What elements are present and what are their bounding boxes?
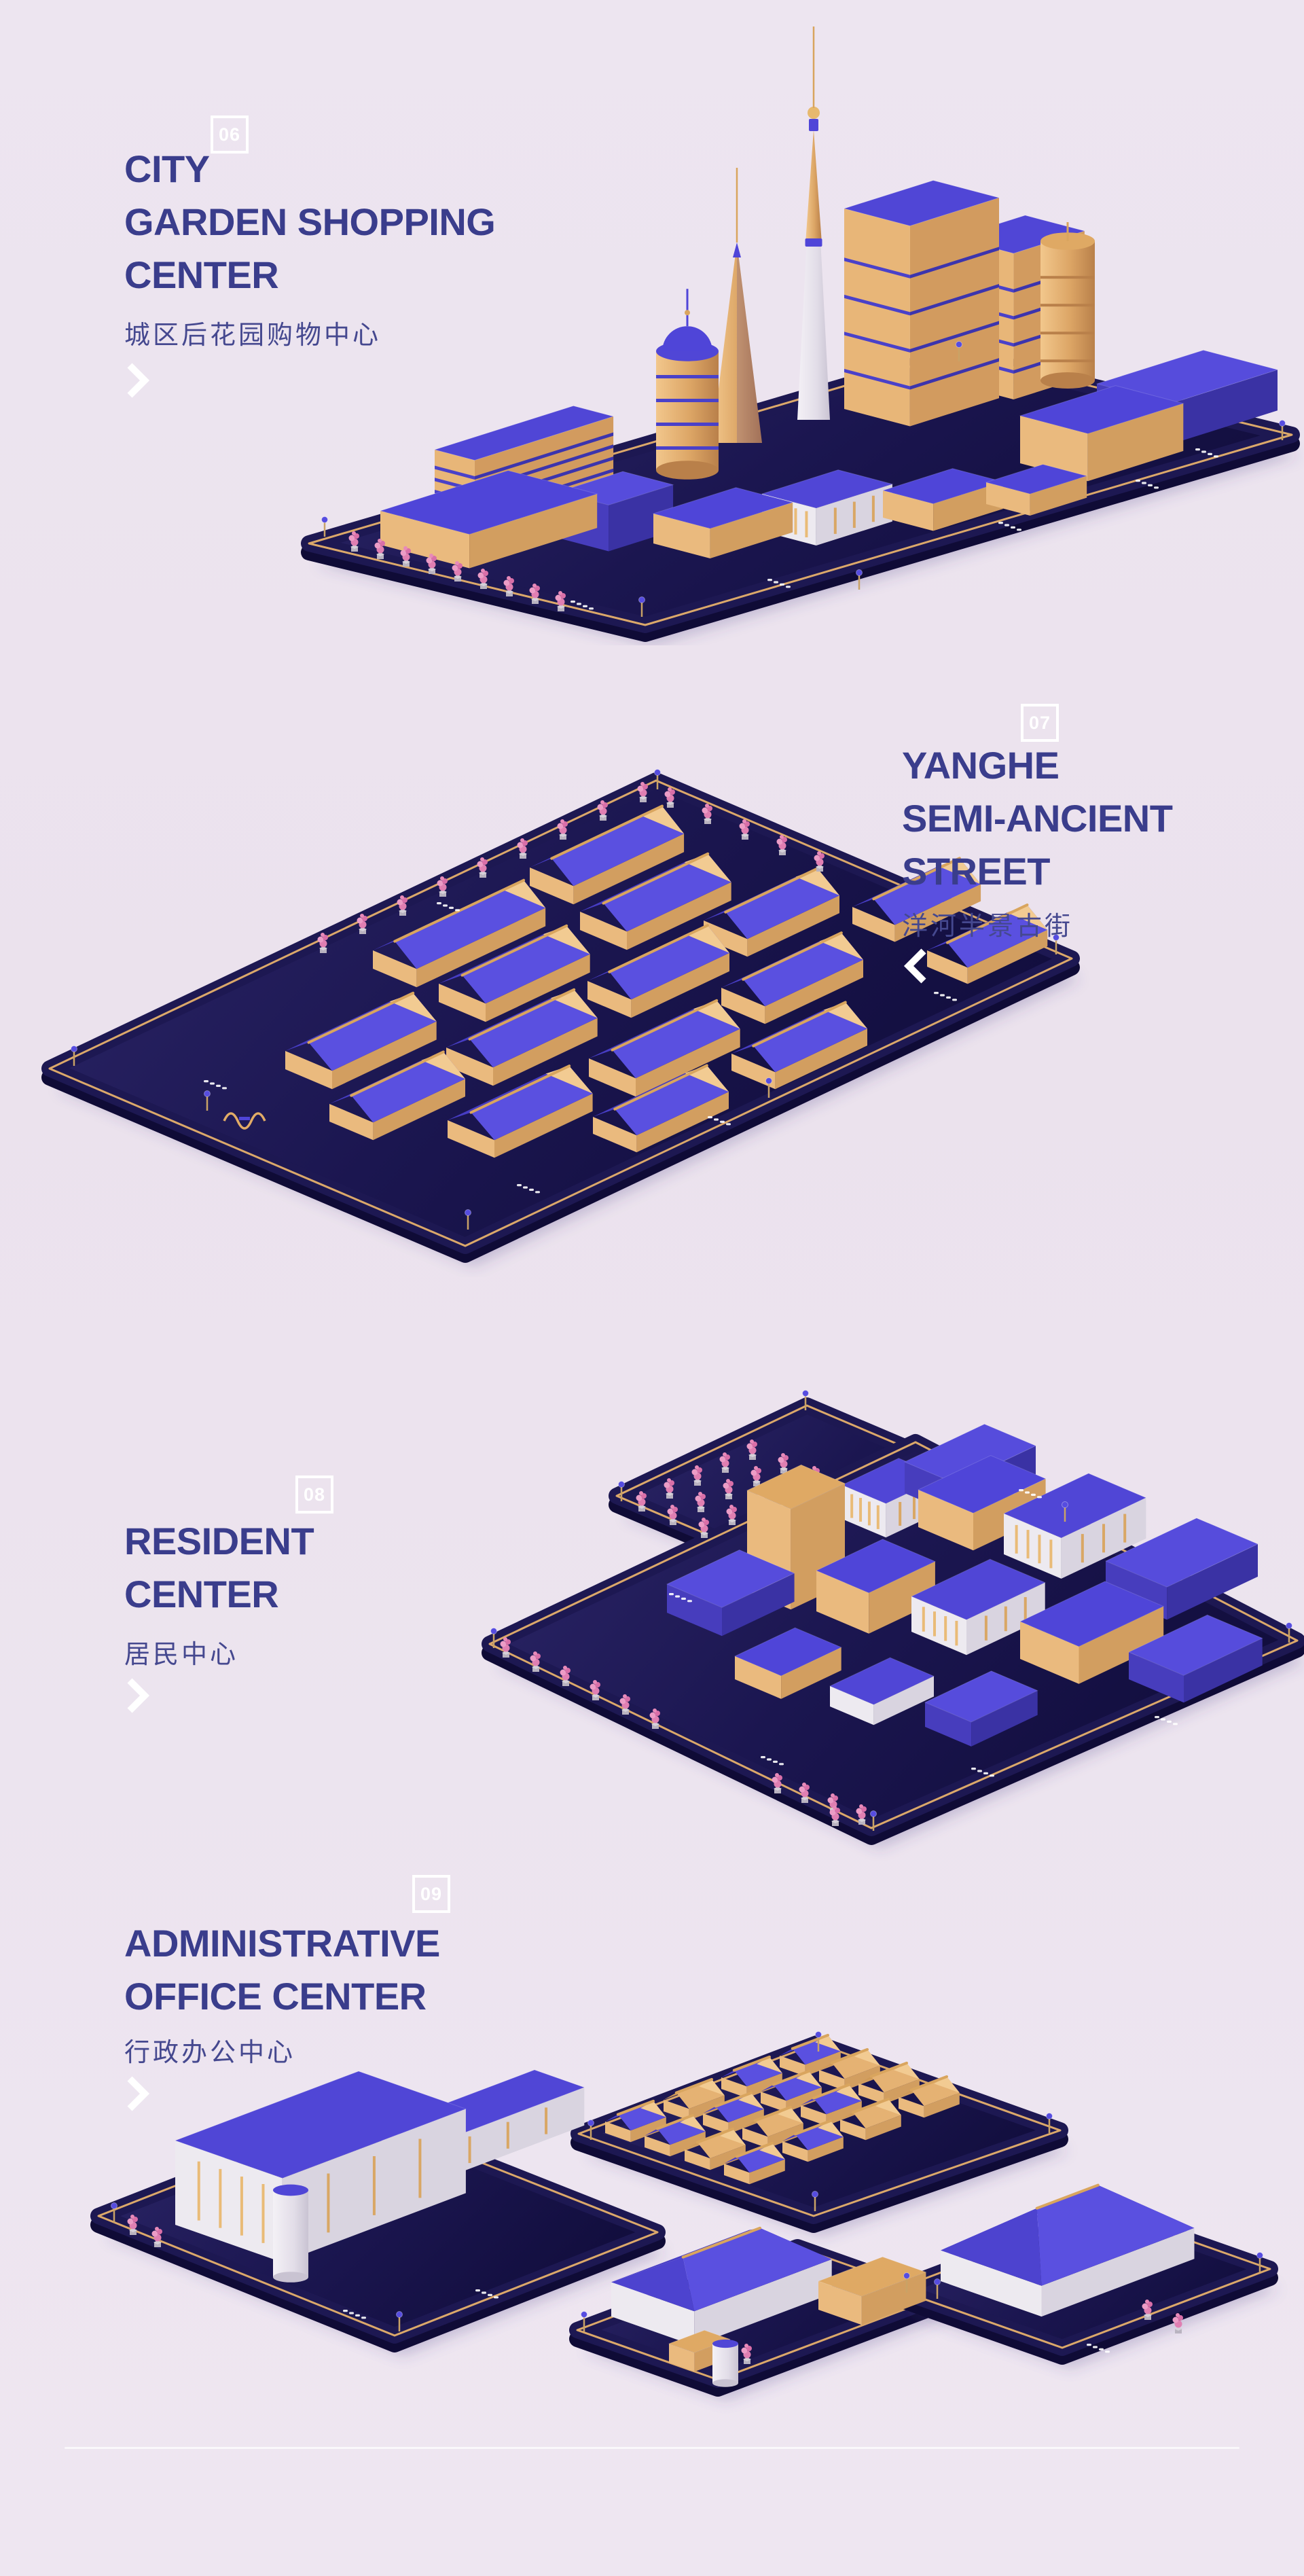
title-line: STREET [902,845,1172,898]
section-number-badge: 09 [412,1875,450,1913]
section-divider-line [65,2447,1239,2449]
title-line: CITY [124,143,495,196]
title-line: GARDEN SHOPPING [124,196,495,249]
chevron-right-icon [124,1675,151,1716]
section-subtitle-chinese: 城区后花园购物中心 [124,314,381,351]
title-line: CENTER [124,249,495,302]
title-line: SEMI-ANCIENT [902,792,1172,845]
chevron-left-button[interactable] [902,946,929,986]
section-title: ADMINISTRATIVE OFFICE CENTER [124,1917,440,2023]
section-number-badge: 07 [1021,704,1059,742]
chevron-right-button[interactable] [124,1675,151,1716]
page: 06 CITY GARDEN SHOPPING CENTER 城区后花园购物中心… [0,0,1304,2576]
chevron-right-button[interactable] [124,360,151,401]
chevron-left-icon [902,946,929,986]
section-subtitle-chinese: 行政办公中心 [124,2031,295,2069]
chevron-right-button[interactable] [124,2073,151,2114]
section-title: YANGHE SEMI-ANCIENT STREET [902,739,1172,898]
chevron-right-icon [124,360,151,401]
chevron-right-icon [124,2073,151,2114]
illustration-resident-center [0,1386,1304,1861]
title-line: RESIDENT [124,1515,314,1568]
section-subtitle-chinese: 洋河半景古街 [902,905,1073,942]
title-line: ADMINISTRATIVE [124,1917,440,1970]
section-title: CITY GARDEN SHOPPING CENTER [124,143,495,302]
illustration-administrative-office-center [0,2024,1304,2446]
title-line: OFFICE CENTER [124,1970,440,2023]
section-title: RESIDENT CENTER [124,1515,314,1621]
section-subtitle-chinese: 居民中心 [124,1633,238,1670]
section-number-badge: 08 [295,1475,333,1514]
title-line: YANGHE [902,739,1172,792]
title-line: CENTER [124,1568,314,1621]
